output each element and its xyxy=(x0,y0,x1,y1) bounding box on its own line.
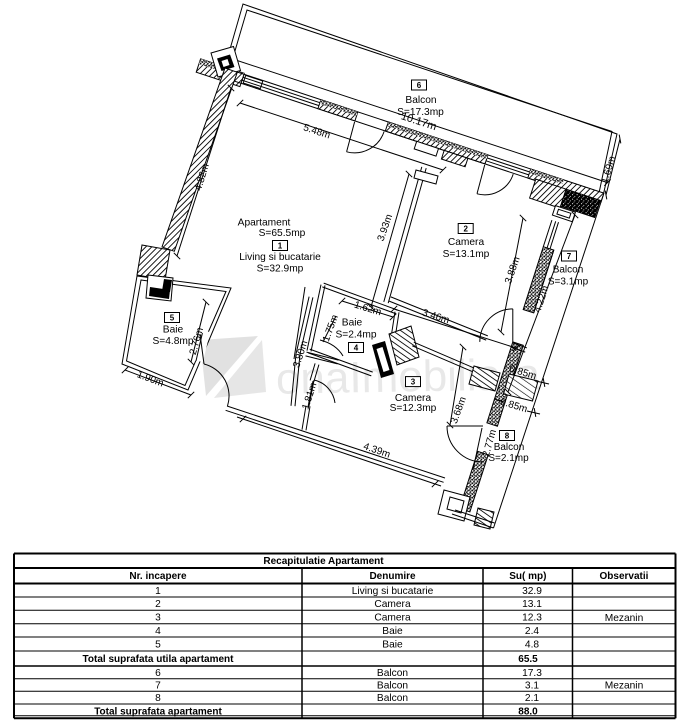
svg-text:Mezanin: Mezanin xyxy=(605,613,644,624)
svg-text:Total suprafata utila apartame: Total suprafata utila apartament xyxy=(83,654,235,665)
svg-text:Balcon: Balcon xyxy=(405,95,436,106)
svg-text:4: 4 xyxy=(354,343,359,352)
svg-text:17.3: 17.3 xyxy=(522,668,542,679)
svg-text:7: 7 xyxy=(567,252,572,261)
svg-text:3.1: 3.1 xyxy=(525,681,539,692)
svg-text:Denumire: Denumire xyxy=(369,571,416,582)
svg-text:Total suprafata apartament: Total suprafata apartament xyxy=(94,707,222,718)
svg-text:4: 4 xyxy=(155,626,161,637)
svg-text:Camera: Camera xyxy=(448,237,485,248)
svg-text:2: 2 xyxy=(155,599,161,610)
svg-text:Observatii: Observatii xyxy=(600,571,649,582)
svg-text:Baie: Baie xyxy=(382,640,403,651)
svg-text:S=3.1mp: S=3.1mp xyxy=(548,277,589,288)
svg-text:3: 3 xyxy=(155,613,161,624)
svg-text:1: 1 xyxy=(155,586,161,597)
svg-text:7: 7 xyxy=(155,681,161,692)
svg-text:S=12.3mp: S=12.3mp xyxy=(390,403,437,414)
svg-text:S=4.8mp: S=4.8mp xyxy=(152,336,193,347)
svg-text:8: 8 xyxy=(155,693,161,704)
svg-text:Baie: Baie xyxy=(163,325,184,336)
svg-text:32.9: 32.9 xyxy=(522,586,542,597)
svg-text:8: 8 xyxy=(505,431,510,440)
svg-text:Nr. incapere: Nr. incapere xyxy=(129,571,187,582)
svg-text:4.8: 4.8 xyxy=(525,640,539,651)
svg-text:S=65.5mp: S=65.5mp xyxy=(259,228,306,239)
svg-text:Baie: Baie xyxy=(382,626,403,637)
svg-text:S=32.9mp: S=32.9mp xyxy=(257,264,304,275)
svg-text:2: 2 xyxy=(463,224,468,233)
svg-text:Apartament: Apartament xyxy=(238,218,291,229)
svg-text:Living si bucatarie: Living si bucatarie xyxy=(352,586,434,597)
svg-text:12.3: 12.3 xyxy=(522,613,542,624)
svg-text:Balcon: Balcon xyxy=(377,668,408,679)
svg-text:Living si bucatarie: Living si bucatarie xyxy=(239,252,321,263)
svg-text:S=2.4mp: S=2.4mp xyxy=(335,330,376,341)
svg-text:65.5: 65.5 xyxy=(518,654,538,665)
svg-text:6: 6 xyxy=(155,668,161,679)
svg-text:Recapitulatie Apartament: Recapitulatie Apartament xyxy=(263,556,384,567)
svg-text:Balcon: Balcon xyxy=(377,693,408,704)
svg-text:6: 6 xyxy=(417,81,422,90)
svg-text:5: 5 xyxy=(155,640,161,651)
svg-text:S=13.1mp: S=13.1mp xyxy=(443,249,490,260)
svg-text:Balcon: Balcon xyxy=(553,265,584,276)
svg-text:S=2.1mp: S=2.1mp xyxy=(488,453,529,464)
svg-text:Baie: Baie xyxy=(342,318,363,329)
svg-text:S=17.3mp: S=17.3mp xyxy=(397,107,444,118)
svg-text:2.4: 2.4 xyxy=(525,626,539,637)
svg-text:Su( mp): Su( mp) xyxy=(509,571,546,582)
svg-text:3: 3 xyxy=(411,377,416,386)
svg-text:Mezanin: Mezanin xyxy=(605,681,644,692)
svg-text:Camera: Camera xyxy=(374,613,411,624)
svg-text:Balcon: Balcon xyxy=(377,681,408,692)
svg-text:Camera: Camera xyxy=(374,599,411,610)
svg-text:88.0: 88.0 xyxy=(518,707,538,718)
svg-text:5: 5 xyxy=(170,313,175,322)
svg-text:13.1: 13.1 xyxy=(522,599,542,610)
svg-text:2.1: 2.1 xyxy=(525,693,539,704)
svg-text:Balcon: Balcon xyxy=(494,442,525,453)
svg-text:1: 1 xyxy=(278,241,283,250)
